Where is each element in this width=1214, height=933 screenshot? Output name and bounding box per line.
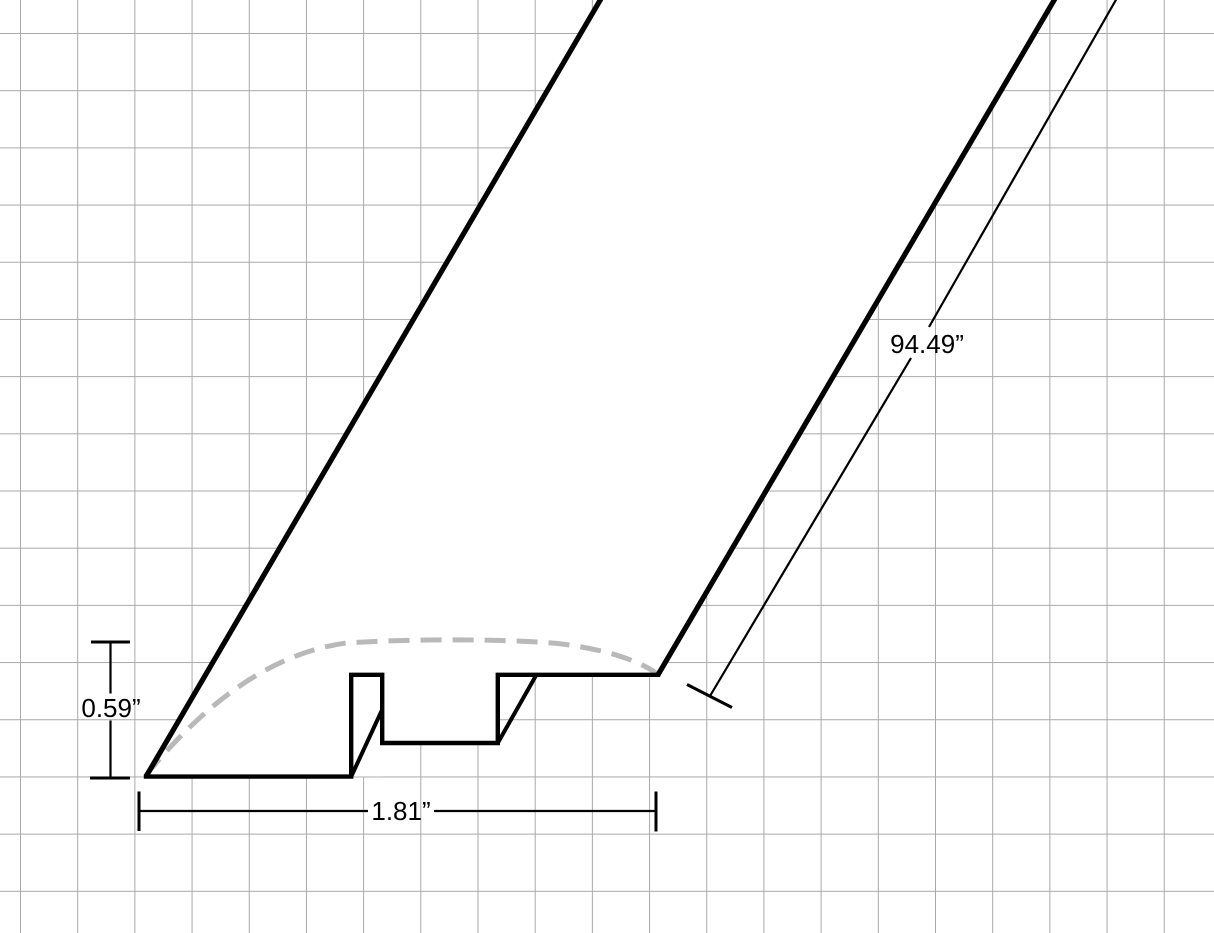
height-dimension-label: 0.59” [81,693,140,723]
length-dimension-label: 94.49” [890,329,964,359]
groove-inner-extruded-edge [498,676,536,744]
width-dimension-label: 1.81” [371,796,430,826]
blueprint-grid-canvas: 0.59” 1.81” 94.49” [0,0,1214,933]
molding-profile-drawing: 0.59” 1.81” 94.49” [0,0,1214,933]
length-dimension-end-tick [687,685,732,708]
